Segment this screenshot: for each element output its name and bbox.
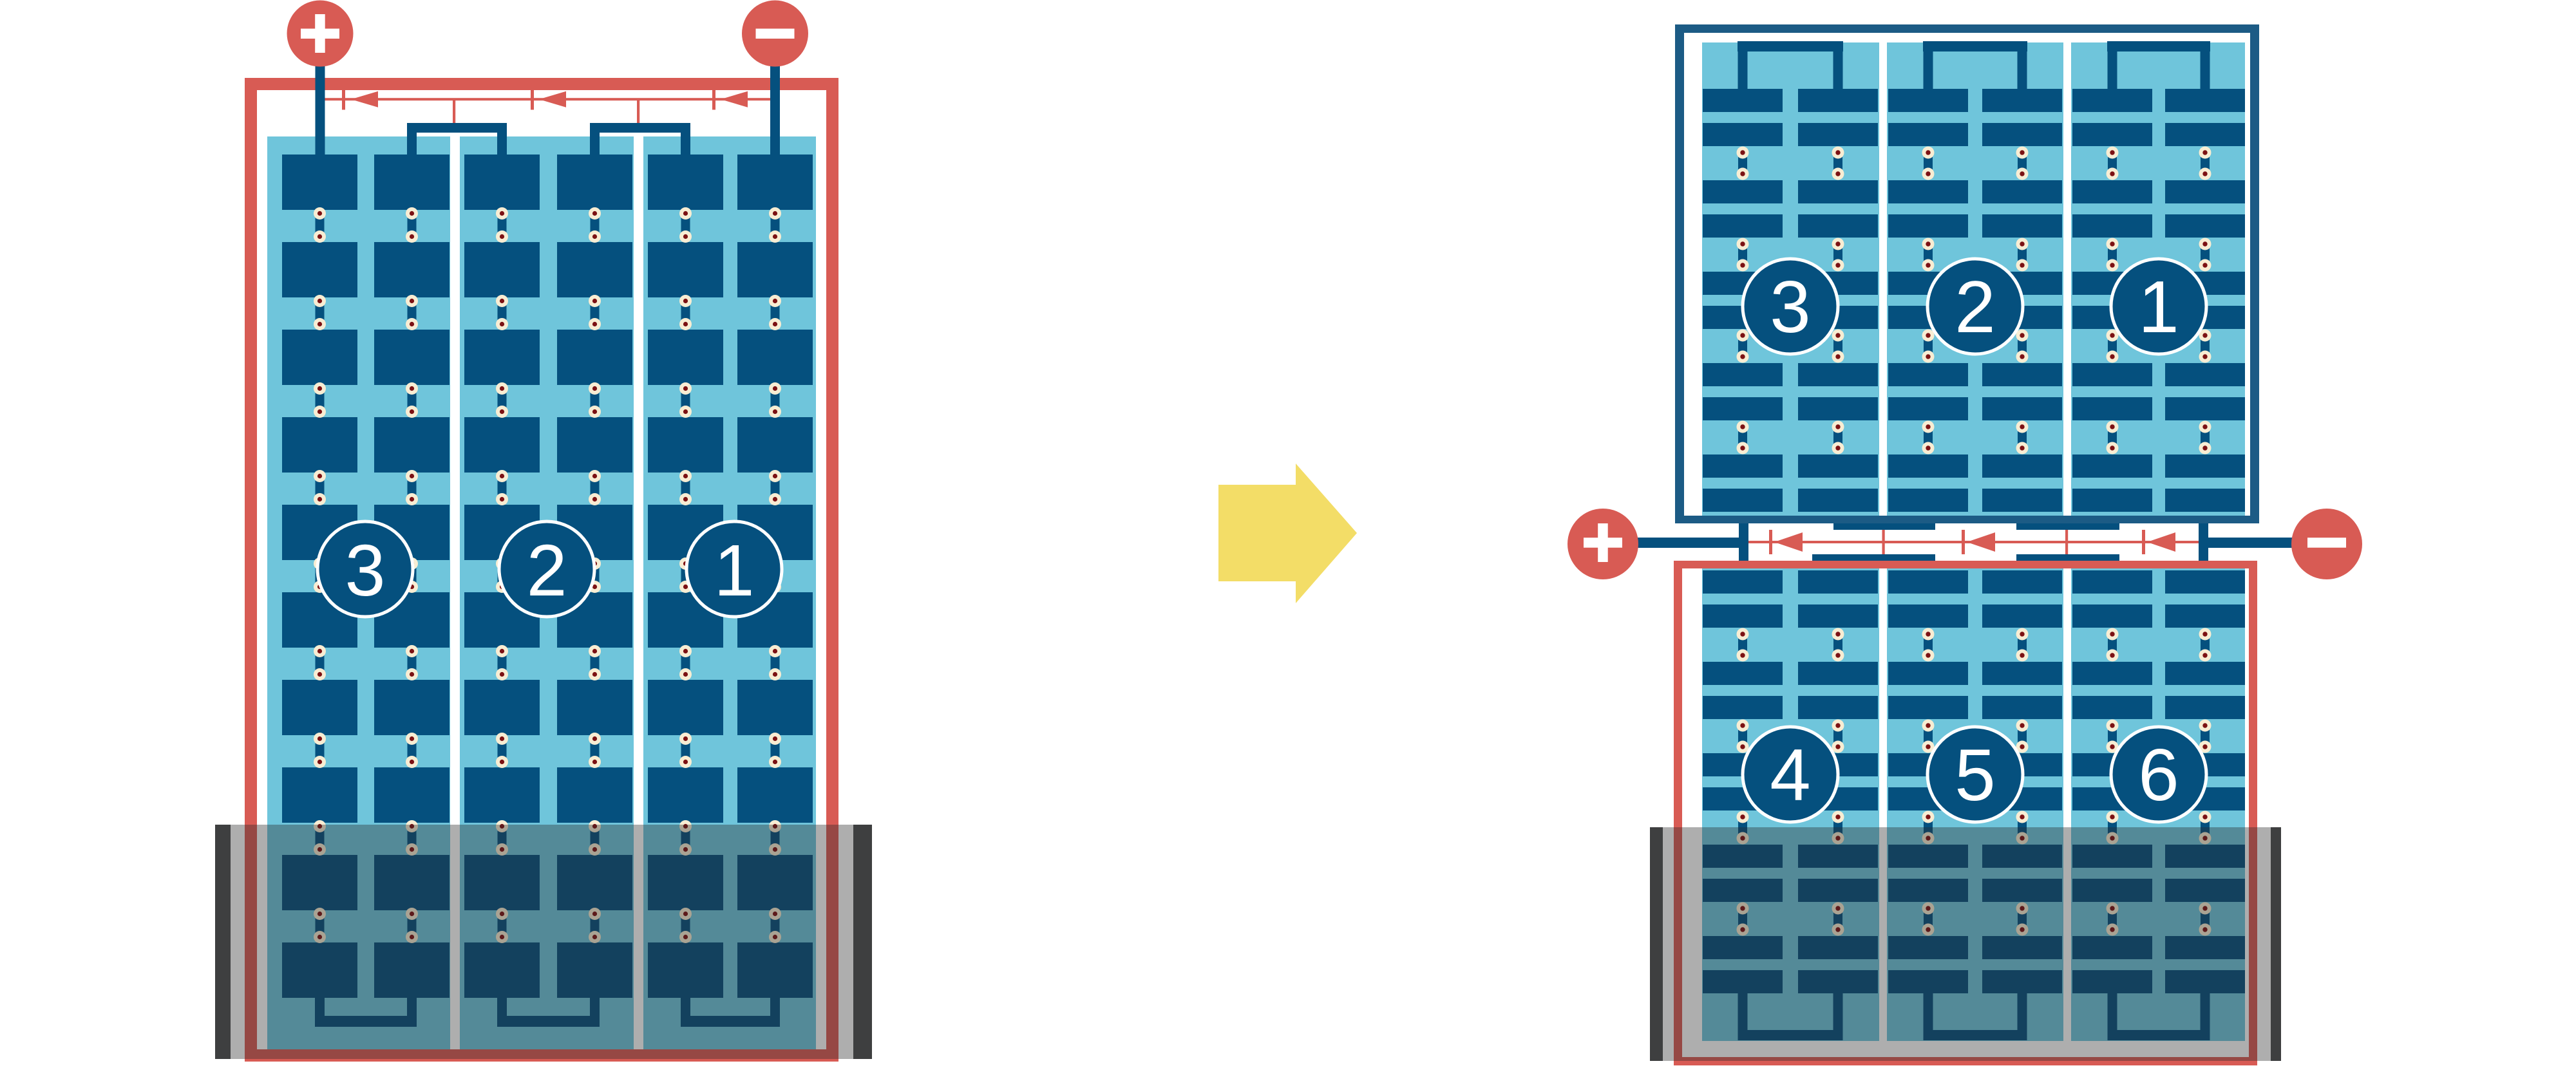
svg-text:2: 2 — [1955, 267, 1995, 348]
svg-text:4: 4 — [1770, 735, 1810, 816]
svg-text:2: 2 — [527, 530, 567, 611]
svg-text:3: 3 — [1770, 267, 1810, 348]
svg-text:1: 1 — [714, 530, 755, 611]
svg-text:6: 6 — [2138, 735, 2179, 816]
svg-text:1: 1 — [2138, 267, 2179, 348]
svg-text:5: 5 — [1955, 735, 1995, 816]
svg-text:3: 3 — [345, 530, 386, 611]
